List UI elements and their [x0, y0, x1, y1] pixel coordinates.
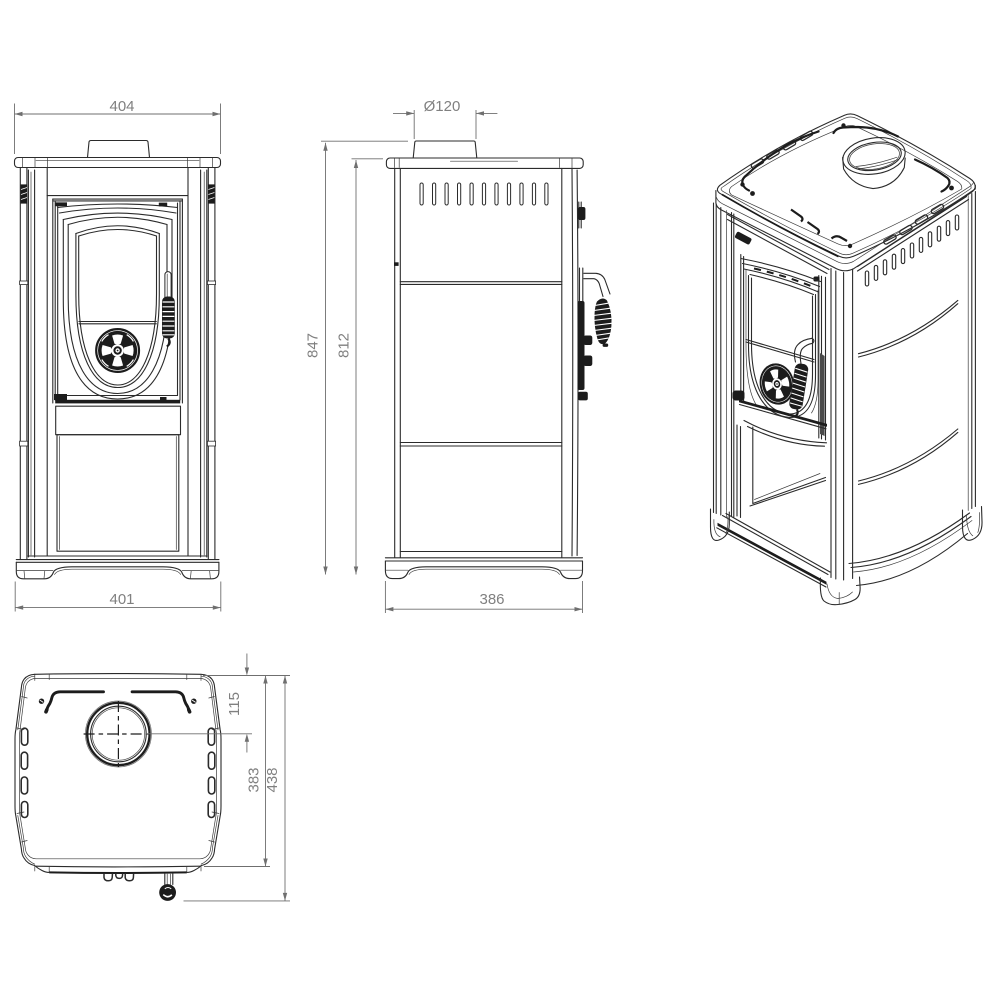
svg-text:847: 847 — [305, 333, 322, 358]
svg-text:401: 401 — [109, 591, 134, 608]
svg-text:812: 812 — [336, 333, 353, 358]
svg-text:438: 438 — [264, 767, 281, 792]
svg-text:383: 383 — [246, 767, 263, 792]
svg-text:Ø120: Ø120 — [424, 98, 461, 115]
svg-text:115: 115 — [226, 692, 243, 716]
svg-text:386: 386 — [479, 591, 504, 608]
svg-text:404: 404 — [109, 98, 134, 115]
